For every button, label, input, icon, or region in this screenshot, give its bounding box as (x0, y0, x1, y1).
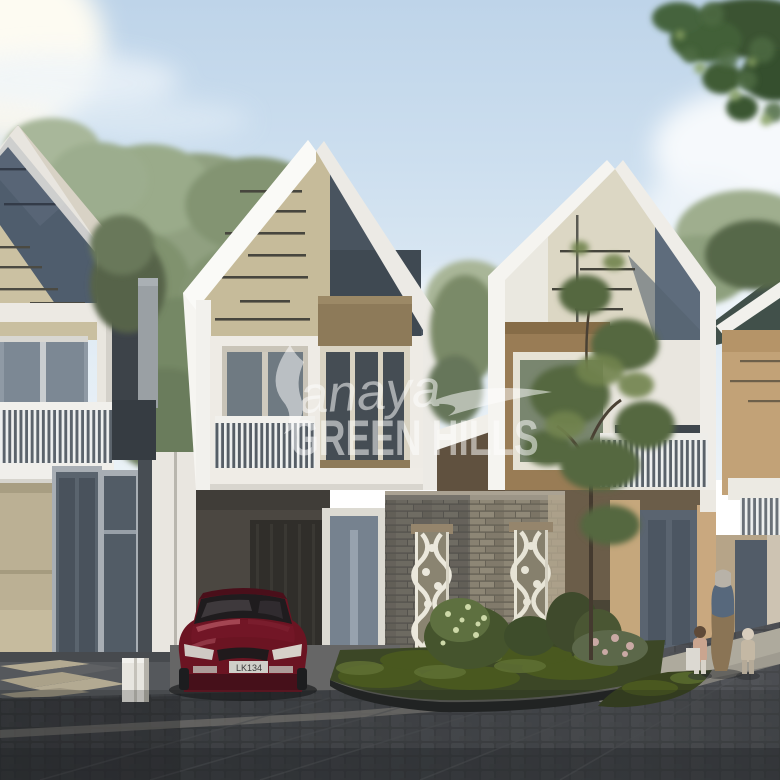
svg-text:LK134: LK134 (236, 663, 262, 673)
svg-text:GREEN HILLS: GREEN HILLS (290, 411, 539, 467)
